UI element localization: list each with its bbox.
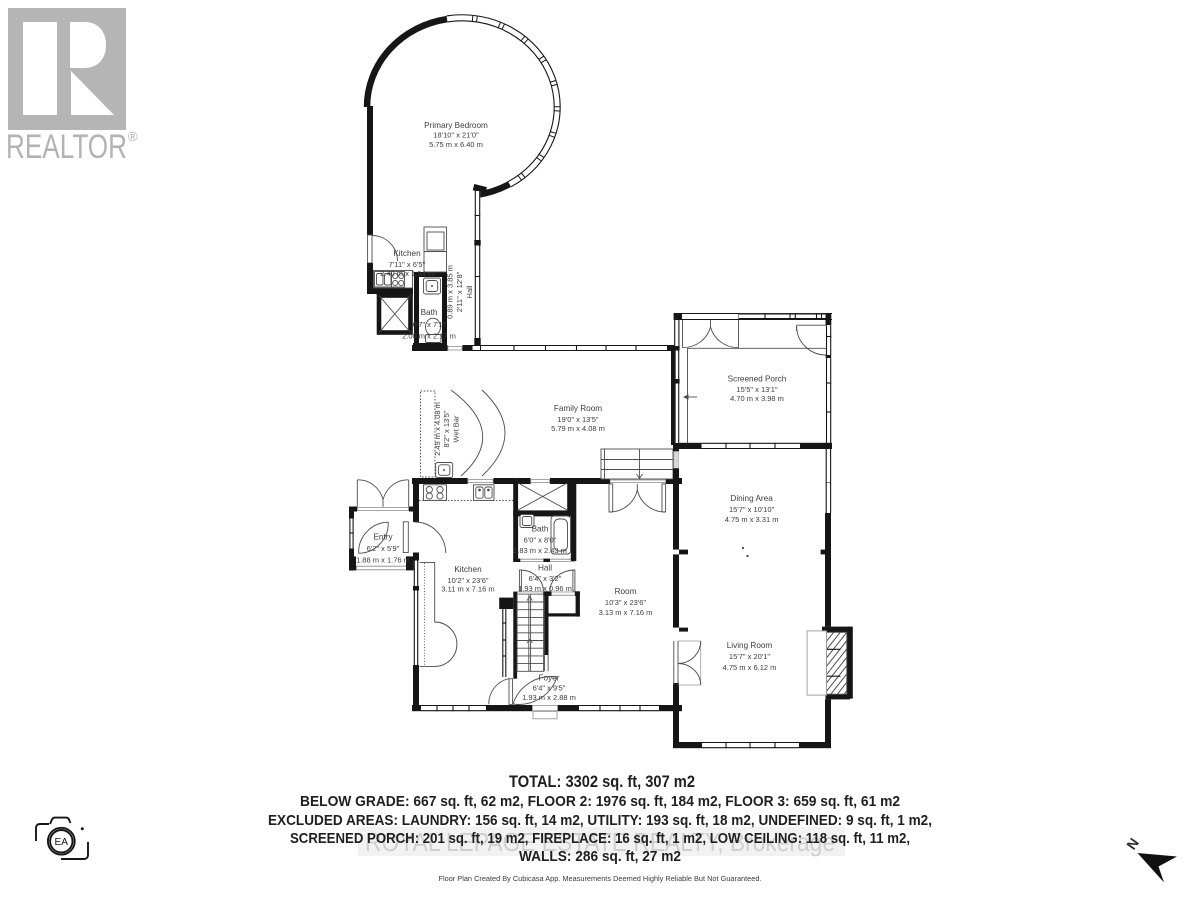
svg-text:Living Room: Living Room (727, 641, 773, 650)
svg-text:2'11" x 12'8": 2'11" x 12'8" (455, 271, 464, 312)
svg-text:N: N (1123, 835, 1142, 852)
svg-text:Bath: Bath (421, 308, 438, 317)
svg-text:Wet Bar: Wet Bar (451, 415, 460, 442)
svg-text:15'7" x 10'10": 15'7" x 10'10" (729, 505, 775, 514)
svg-text:1.88 m x 1.76 m: 1.88 m x 1.76 m (356, 555, 410, 564)
svg-text:10'3" x 23'6": 10'3" x 23'6" (605, 598, 646, 607)
svg-text:3.13 m x 7.16 m: 3.13 m x 7.16 m (599, 608, 653, 617)
svg-text:0.89 m x 3.85 m: 0.89 m x 3.85 m (445, 265, 454, 319)
svg-text:3.11 m x 7.16 m: 3.11 m x 7.16 m (441, 584, 494, 593)
svg-text:Hall: Hall (538, 563, 552, 572)
svg-text:WALLS: 286 sq. ft, 27 m2: WALLS: 286 sq. ft, 27 m2 (519, 848, 681, 865)
svg-text:19'0" x 13'5": 19'0" x 13'5" (557, 415, 598, 424)
svg-text:2.00 m x 2.17 m: 2.00 m x 2.17 m (402, 331, 456, 340)
svg-text:8'2" x 13'5": 8'2" x 13'5" (442, 410, 451, 447)
svg-text:SCREENED PORCH: 201 sq. ft, 19: SCREENED PORCH: 201 sq. ft, 19 m2, FIREP… (290, 830, 910, 847)
svg-text:15'5" x 13'1": 15'5" x 13'1" (736, 385, 777, 394)
svg-text:Family Room: Family Room (554, 404, 602, 413)
svg-text:Hall: Hall (465, 285, 474, 298)
svg-text:4.75 m x 6.12 m: 4.75 m x 6.12 m (723, 663, 777, 672)
svg-text:18'10" x 21'0": 18'10" x 21'0" (433, 131, 479, 140)
svg-text:Kitchen: Kitchen (393, 249, 421, 258)
svg-text:6'4" x 3'2": 6'4" x 3'2" (529, 574, 562, 583)
svg-text:Entry: Entry (373, 532, 393, 541)
svg-text:Room: Room (615, 587, 637, 596)
svg-text:Dining Area: Dining Area (730, 494, 773, 503)
svg-text:TOTAL: 3302 sq. ft, 307 m2: TOTAL: 3302 sq. ft, 307 m2 (509, 772, 695, 791)
svg-text:EA: EA (55, 837, 69, 848)
svg-text:Primary Bedroom: Primary Bedroom (424, 121, 488, 130)
svg-text:7'11" x 6'5": 7'11" x 6'5" (389, 260, 426, 269)
svg-text:BELOW GRADE: 667 sq. ft, 62 m2: BELOW GRADE: 667 sq. ft, 62 m2, FLOOR 2:… (300, 793, 900, 810)
svg-text:6'7" x 7'1": 6'7" x 7'1" (413, 320, 446, 329)
svg-text:®: ® (128, 129, 138, 144)
svg-text:2.49 m x 4.08 m: 2.49 m x 4.08 m (433, 402, 442, 456)
svg-text:2.40 m x 1.94 m: 2.40 m x 1.94 m (380, 269, 434, 278)
svg-text:1.83 m x 2.43 m: 1.83 m x 2.43 m (513, 546, 567, 555)
svg-text:4.75 m x 3.31 m: 4.75 m x 3.31 m (725, 515, 779, 524)
svg-text:EXCLUDED AREAS: LAUNDRY: 156 s: EXCLUDED AREAS: LAUNDRY: 156 sq. ft, 14 … (268, 812, 932, 829)
svg-text:5.75 m x 6.40 m: 5.75 m x 6.40 m (429, 140, 483, 149)
svg-text:6'4" x 9'5": 6'4" x 9'5" (533, 683, 566, 692)
svg-text:1.93 m x 2.88 m: 1.93 m x 2.88 m (522, 693, 576, 702)
svg-text:Foyer: Foyer (539, 673, 560, 682)
svg-text:6'2" x 5'9": 6'2" x 5'9" (367, 544, 400, 553)
svg-text:REALTOR: REALTOR (6, 128, 127, 166)
svg-text:Kitchen: Kitchen (454, 565, 482, 574)
svg-text:15'7" x 20'1": 15'7" x 20'1" (729, 652, 770, 661)
svg-text:6'0" x 8'0": 6'0" x 8'0" (524, 535, 557, 544)
svg-text:4.70 m x 3.98 m: 4.70 m x 3.98 m (730, 394, 784, 403)
svg-text:Bath: Bath (532, 524, 549, 533)
svg-text:5.79 m x 4.08 m: 5.79 m x 4.08 m (551, 424, 605, 433)
svg-text:Screened Porch: Screened Porch (728, 374, 787, 383)
svg-text:Floor Plan Created By Cubicasa: Floor Plan Created By Cubicasa App. Meas… (439, 874, 762, 883)
